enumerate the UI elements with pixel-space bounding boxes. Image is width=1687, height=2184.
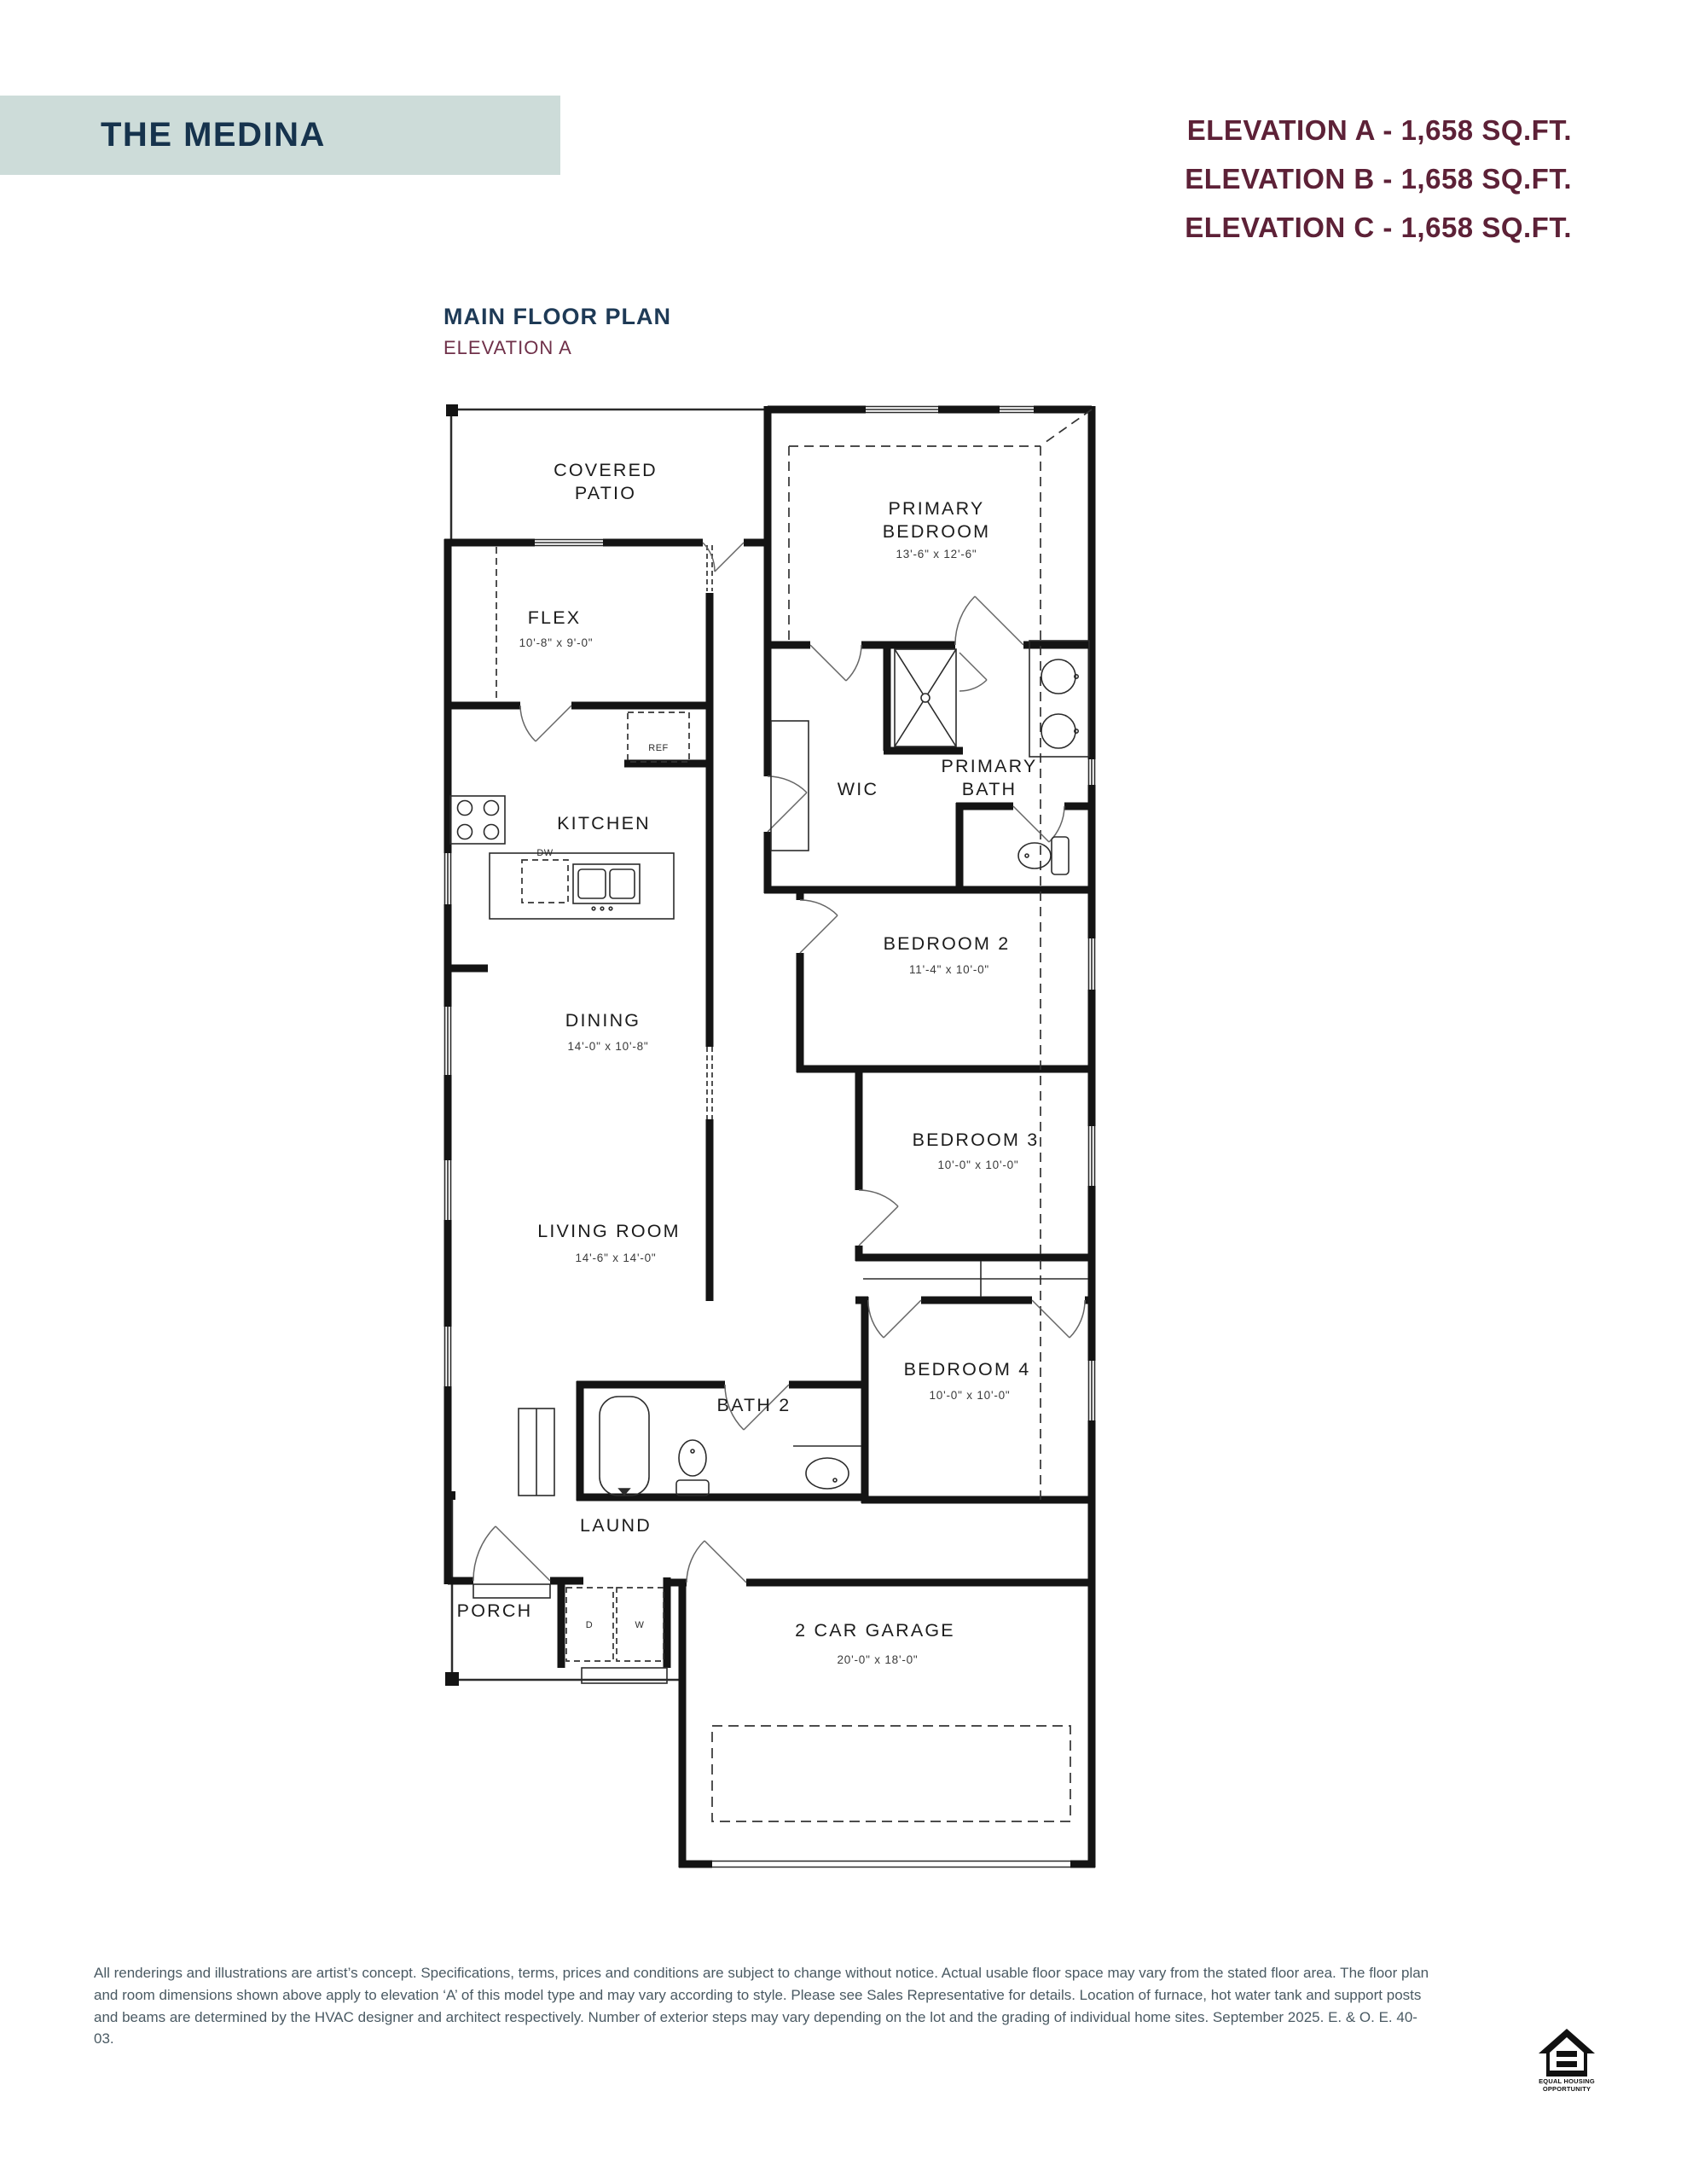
dashed-lines [496,409,1092,1821]
ref-box [628,712,689,762]
wic-closet-rod [771,721,809,851]
plan-title: MAIN FLOOR PLAN [443,304,671,330]
primary-bath-door [955,596,1023,645]
label-bedroom2: BEDROOM 2 [884,933,1011,954]
dims-bedroom4: 10'-0" x 10'-0" [929,1389,1010,1402]
dims-bedroom2: 11'-4" x 10'-0" [909,963,989,976]
label-laund: LAUND [580,1515,652,1536]
bedroom4-closet-door [1032,1300,1085,1338]
primary-vanity-icon [1029,641,1089,757]
flex-door [520,706,571,741]
patio-door [703,543,744,572]
front-step [473,1584,550,1598]
room-labels: COVERED PATIO PRIMARY BEDROOM 13'-6" x 1… [457,460,1040,1666]
eho-label-1: EQUAL HOUSING [1539,2077,1595,2085]
elevation-a: ELEVATION A - 1,658 SQ.FT. [1185,106,1572,154]
plan-subtitle: ELEVATION A [443,337,671,359]
label-dryer: D [586,1620,593,1630]
label-washer: W [635,1620,645,1630]
dims-primary-bedroom: 13'-6" x 12'-6" [896,548,977,561]
bathtub-icon [600,1397,649,1496]
elevation-list: ELEVATION A - 1,658 SQ.FT. ELEVATION B -… [1185,106,1572,252]
label-bedroom4: BEDROOM 4 [904,1359,1031,1380]
bedroom2-door [800,900,838,953]
page-title: THE MEDINA [101,116,326,154]
equal-housing-logo: EQUAL HOUSING OPPORTUNITY [1535,2027,1598,2098]
dims-garage: 20'-0" x 18'-0" [837,1653,918,1666]
floorplan-sheet: { "header": { "title": "THE MEDINA", "el… [0,0,1687,2184]
label-kitchen: KITCHEN [557,813,651,834]
label-primary-bath-2: BATH [962,779,1017,799]
dw-box [522,860,568,903]
garage-entry-door [687,1541,746,1583]
dims-living: 14'-6" x 14'-0" [575,1252,656,1264]
wic-door [768,776,807,832]
label-primary-bath: PRIMARY [942,756,1038,776]
shower-icon [895,649,956,746]
front-door [473,1526,550,1581]
bedroom4-door [868,1300,921,1338]
disclaimer-text: All renderings and illustrations are art… [94,1962,1431,2050]
label-garage: 2 CAR GARAGE [795,1620,955,1641]
label-covered-patio: COVERED [554,460,658,480]
label-covered-patio-2: PATIO [575,483,636,503]
eho-label-2: OPPORTUNITY [1543,2085,1591,2093]
label-bath2: BATH 2 [717,1395,791,1415]
shower-door [959,653,987,691]
entry-closet [519,1409,554,1496]
label-bedroom3: BEDROOM 3 [913,1130,1040,1150]
label-living: LIVING ROOM [537,1221,681,1241]
dims-bedroom3: 10'-0" x 10'-0" [937,1159,1018,1171]
label-porch: PORCH [457,1600,533,1621]
label-ref: REF [648,743,669,753]
bath2-sink-icon [793,1446,861,1489]
floor-plan-svg: COVERED PATIO PRIMARY BEDROOM 13'-6" x 1… [426,388,1109,1877]
bedroom3-door [859,1190,898,1246]
bath2-toilet-icon [676,1440,709,1496]
dims-dining: 14'-0" x 10'-8" [567,1040,648,1053]
elevation-b: ELEVATION B - 1,658 SQ.FT. [1185,154,1572,203]
label-flex: FLEX [528,607,582,628]
label-dining: DINING [565,1010,641,1031]
label-wic: WIC [838,779,878,799]
label-dw: DW [536,848,553,858]
label-primary-bedroom: PRIMARY [889,498,985,519]
kitchen-sink-icon [573,864,640,903]
floor-plan: COVERED PATIO PRIMARY BEDROOM 13'-6" x 1… [426,388,1109,1877]
plan-heading: MAIN FLOOR PLAN ELEVATION A [443,304,671,359]
garage-step [582,1668,667,1683]
closet-shelf-lines [863,1261,1088,1297]
label-primary-bedroom-2: BEDROOM [883,521,991,542]
door-arcs [473,543,1085,1583]
elevation-c: ELEVATION C - 1,658 SQ.FT. [1185,203,1572,252]
title-box: THE MEDINA [0,96,560,175]
eho-house-icon: EQUAL HOUSING OPPORTUNITY [1535,2027,1598,2094]
primary-wic-door [810,645,861,681]
kitchen-island [490,853,674,919]
dims-flex: 10'-8" x 9'-0" [519,636,594,649]
disclaimer: All renderings and illustrations are art… [94,1962,1431,2050]
primary-toilet-icon [1018,837,1069,874]
